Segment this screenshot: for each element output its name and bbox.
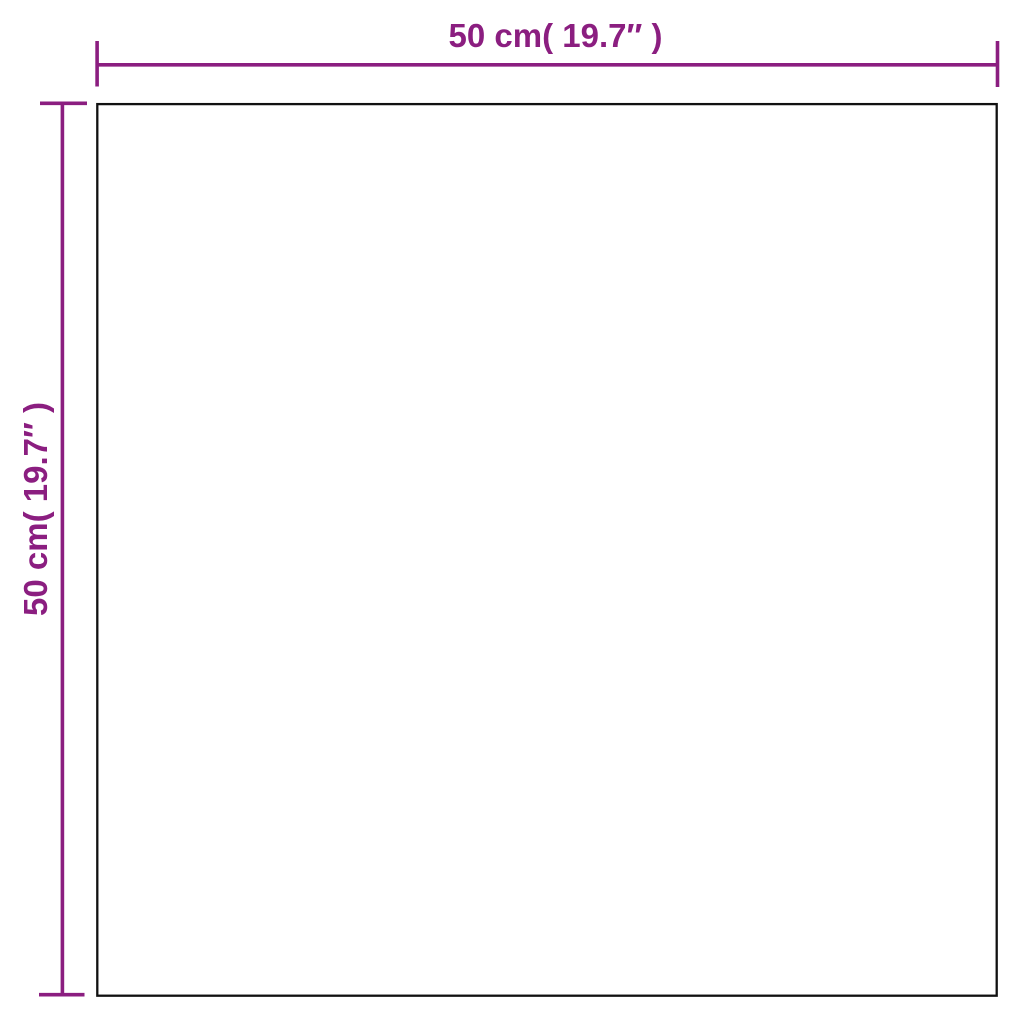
svg-text:50 cm( 19.7″ ): 50 cm( 19.7″ ): [449, 17, 663, 54]
svg-text:50 cm( 19.7″ ): 50 cm( 19.7″ ): [17, 402, 54, 616]
